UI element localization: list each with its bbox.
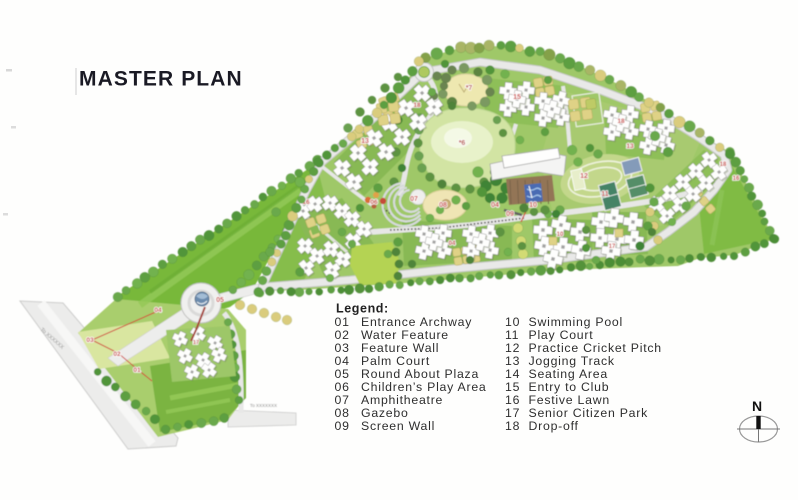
svg-text:16: 16	[505, 393, 520, 407]
svg-text:15: 15	[505, 380, 520, 394]
svg-text:10: 10	[505, 315, 520, 329]
svg-text:03: 03	[335, 341, 350, 355]
svg-text:Senior Citizen Park: Senior Citizen Park	[529, 406, 649, 420]
svg-text:06: 06	[335, 380, 350, 394]
svg-text:11: 11	[505, 328, 519, 342]
svg-text:01: 01	[335, 315, 350, 329]
svg-text:Round About Plaza: Round About Plaza	[361, 367, 479, 381]
svg-text:14: 14	[505, 367, 520, 381]
svg-text:09: 09	[335, 419, 350, 433]
svg-text:Feature Wall: Feature Wall	[361, 341, 439, 355]
svg-text:Festive Lawn: Festive Lawn	[529, 393, 610, 407]
svg-text:Seating Area: Seating Area	[529, 367, 608, 381]
svg-text:02: 02	[335, 328, 350, 342]
svg-text:Jogging Track: Jogging Track	[529, 354, 615, 368]
svg-text:Gazebo: Gazebo	[361, 406, 409, 420]
svg-text:Entrance Archway: Entrance Archway	[361, 315, 472, 329]
svg-text:Children’s Play Area: Children’s Play Area	[361, 380, 487, 394]
svg-text:Entry to Club: Entry to Club	[529, 380, 610, 394]
svg-text:N: N	[752, 398, 762, 414]
svg-text:07: 07	[335, 393, 350, 407]
svg-text:MASTER PLAN: MASTER PLAN	[79, 68, 243, 91]
svg-text:Water Feature: Water Feature	[361, 328, 449, 342]
svg-text:Legend:: Legend:	[336, 302, 389, 316]
svg-text:Palm Court: Palm Court	[361, 354, 430, 368]
svg-text:08: 08	[335, 406, 350, 420]
svg-text:Drop-off: Drop-off	[529, 419, 579, 433]
svg-text:04: 04	[335, 354, 350, 368]
svg-text:Amphitheatre: Amphitheatre	[361, 393, 443, 407]
svg-text:Play Court: Play Court	[529, 328, 594, 342]
svg-text:18: 18	[505, 419, 520, 433]
svg-text:05: 05	[335, 367, 350, 381]
svg-text:17: 17	[505, 406, 520, 420]
svg-text:12: 12	[505, 341, 520, 355]
svg-text:Practice Cricket Pitch: Practice Cricket Pitch	[529, 341, 662, 355]
svg-text:Swimming Pool: Swimming Pool	[529, 315, 624, 329]
svg-text:Screen Wall: Screen Wall	[361, 419, 435, 433]
svg-text:13: 13	[505, 354, 520, 368]
